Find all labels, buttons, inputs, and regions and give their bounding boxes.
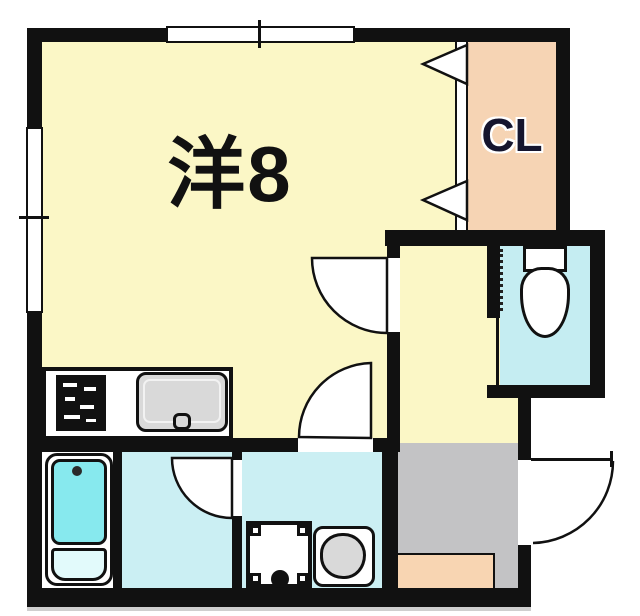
wall-entrance-right-upper (518, 398, 531, 460)
wall-bathroom-lower (232, 516, 242, 588)
toilet-door-dashed-line (500, 249, 503, 311)
room-hallway-lower (398, 398, 518, 443)
front-door-leaf (531, 458, 613, 461)
entrance-step (398, 553, 495, 588)
drain-icon (271, 570, 289, 588)
vanity-basin-icon (313, 526, 375, 587)
window-top-mullion (258, 20, 261, 48)
wall-hall-partition-upper (387, 246, 400, 258)
main-room-label: 洋8 (130, 118, 330, 218)
tub-drain-icon (72, 466, 82, 476)
room-bathroom (122, 452, 232, 588)
wall-under-kitchen (27, 438, 298, 452)
wall-toilet-right (590, 230, 605, 398)
shadow-strip (27, 607, 531, 611)
wall-left (27, 28, 42, 607)
kitchen-sink-icon (136, 372, 228, 432)
sink-faucet-icon (173, 413, 191, 430)
wall-below-closet (385, 230, 605, 246)
wall-hall-partition-lower (387, 332, 400, 438)
window-left (26, 127, 43, 313)
toilet-door-leaf (496, 318, 499, 385)
wall-bottom (27, 588, 531, 607)
wall-under-kitchen-right (373, 438, 400, 452)
front-door-leaf-end (610, 451, 613, 467)
front-door-opening (518, 460, 531, 545)
stove-icon (56, 375, 106, 431)
front-door-swing-icon (533, 461, 613, 543)
window-left-mullion (19, 216, 49, 219)
wall-washroom-entrance (382, 452, 398, 588)
wall-toilet-bottom (487, 385, 605, 398)
floor-plan: 洋8 CL (0, 0, 640, 616)
bathtub-icon (45, 453, 113, 586)
wall-bath-divider (113, 452, 122, 588)
wall-bathroom-stub-top (232, 452, 242, 460)
wall-entrance-right-lower (518, 545, 531, 607)
wall-toilet-left (487, 246, 500, 318)
washing-machine-pan-icon (246, 521, 312, 588)
closet-label: CL (462, 105, 562, 165)
room-hallway-upper (400, 246, 487, 398)
